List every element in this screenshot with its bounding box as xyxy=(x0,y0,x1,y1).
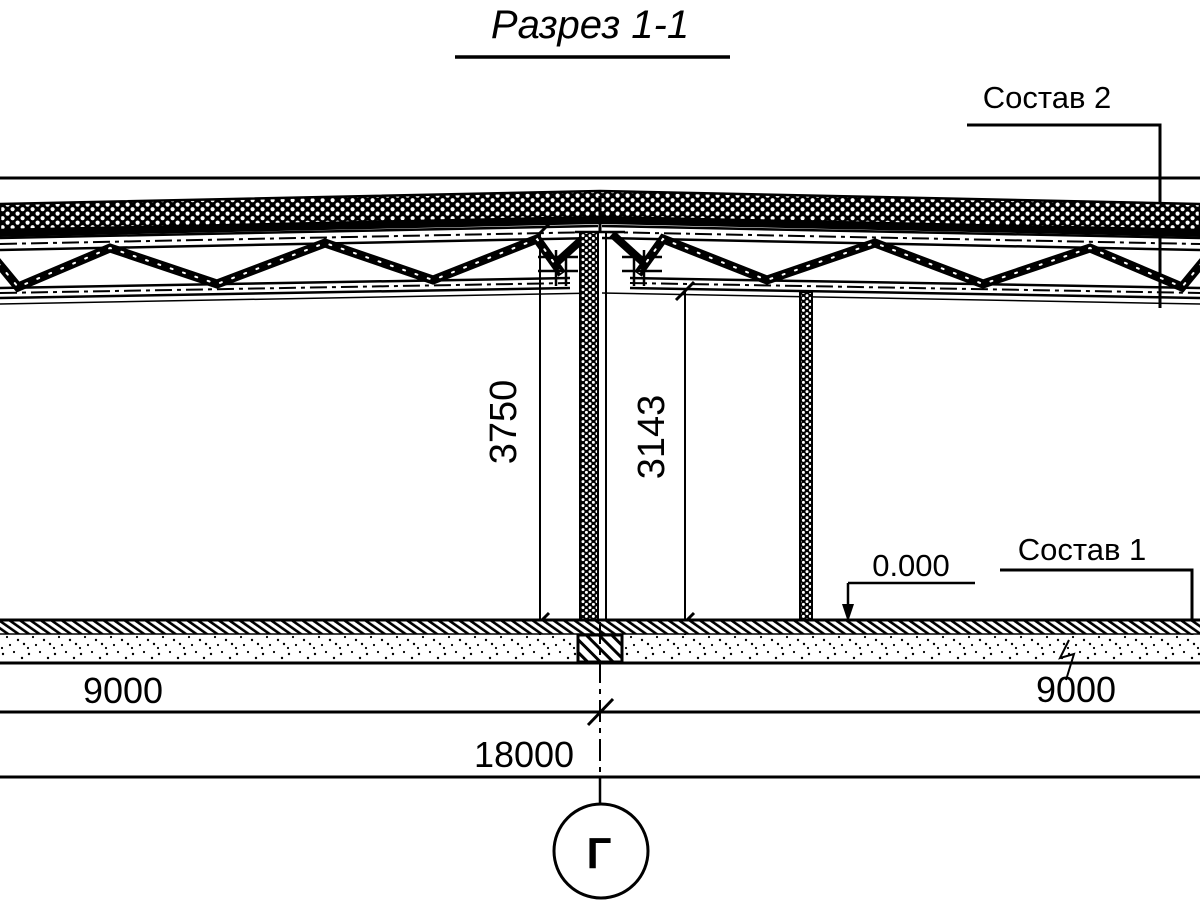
truss-bottom-chord-right xyxy=(602,278,1200,304)
composition-2-label: Состав 2 xyxy=(983,80,1112,115)
dimension-3750: 3750 xyxy=(483,224,549,645)
section-drawing-sheet: Разрез 1-1 Состав 2 xyxy=(0,0,1200,900)
composition-2-callout: Состав 2 xyxy=(967,80,1160,308)
axis-label: Г xyxy=(587,829,612,878)
span-total-label: 18000 xyxy=(474,734,574,775)
span-left-label: 9000 xyxy=(83,670,163,711)
truss-bottom-chord-left xyxy=(0,278,598,304)
section-drawing: Разрез 1-1 Состав 2 xyxy=(0,0,1200,900)
elevation-mark: 0.000 xyxy=(842,548,975,622)
center-column xyxy=(580,232,598,622)
section-title: Разрез 1-1 xyxy=(491,3,689,47)
dimension-3143: 3143 xyxy=(631,282,694,645)
dim-3143-label: 3143 xyxy=(631,395,673,480)
intermediate-post xyxy=(800,292,812,622)
elevation-zero-label: 0.000 xyxy=(872,548,950,583)
drawing-header: Разрез 1-1 xyxy=(455,3,730,57)
dim-3750-label: 3750 xyxy=(483,380,525,465)
composition-1-label: Состав 1 xyxy=(1018,532,1147,567)
span-right-label: 9000 xyxy=(1036,669,1116,710)
